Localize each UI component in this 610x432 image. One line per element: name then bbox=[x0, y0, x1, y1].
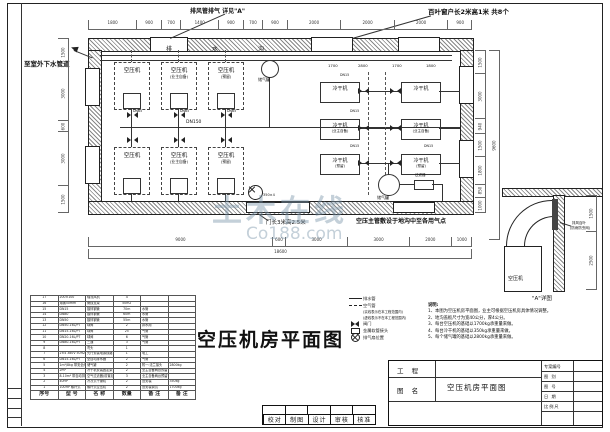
field-label: 专案编号 bbox=[544, 364, 561, 370]
dryer-unit: 冷干机(业主自备) bbox=[401, 119, 441, 140]
approval-label: 校对 bbox=[263, 415, 285, 424]
dim-chain-right: 15003000940150018008501000 bbox=[475, 50, 486, 213]
air-tank-label: 储气罐 bbox=[258, 78, 270, 82]
frame-corner-cells bbox=[7, 388, 21, 426]
drawing-title: 空压机房平面图 bbox=[197, 330, 344, 351]
compressor-unit: 空压机(业主自备) bbox=[161, 62, 197, 110]
louver-window bbox=[398, 37, 440, 52]
drawing-name-value: 空压机房平面图 bbox=[447, 384, 507, 392]
inner-dim: 1700 bbox=[328, 64, 338, 68]
dim-total-bottom: 18600 bbox=[88, 249, 472, 259]
exhaust-note: 排风管排气 详见"A" bbox=[190, 9, 245, 16]
pipe-size-label: DN150 bbox=[186, 121, 201, 126]
approval-labels-row: 校对制图设计审核核准 bbox=[263, 415, 375, 424]
exhaust-fan-label: 350×4 bbox=[263, 194, 275, 198]
louver-note: 百叶窗户长2米高1米 共8个 bbox=[428, 9, 509, 16]
compressor-unit: 空压机(预留) bbox=[208, 62, 244, 110]
dim-chain-left: 1500300060030001500 bbox=[58, 38, 69, 213]
notes: 说明: 1、本图为空压机房平面图，业主可根据空压机房具体情况调整。2、地沟盖板尺… bbox=[428, 303, 600, 341]
door-opening bbox=[246, 202, 310, 213]
frame-binding-line bbox=[21, 3, 22, 426]
approval-strip: 校对制图设计审核核准 bbox=[262, 405, 376, 425]
inner-dim: 1700 bbox=[392, 64, 402, 68]
legend: 排水管 空气管 (实线表示在本工程范围内) (虚线表示不在本工程范围内) 阀门 … bbox=[347, 295, 431, 341]
bom-header-row: 序号型 号名 称 数量备 注备 注 bbox=[31, 391, 196, 400]
dim-total-right: 9600 bbox=[489, 50, 500, 240]
detail-louver bbox=[552, 199, 558, 230]
filter-label: 过滤器 bbox=[415, 174, 426, 178]
pipe-size-label: DN15 bbox=[350, 110, 359, 114]
dryer-unit: 冷干机(业主自备) bbox=[320, 119, 360, 140]
trench-char: 水 bbox=[212, 47, 218, 54]
compressor-unit: 空压机 bbox=[114, 62, 150, 110]
compressor-unit: 空压机 bbox=[114, 147, 150, 195]
dryer-unit: 冷干机 bbox=[320, 82, 360, 103]
approval-label: 制图 bbox=[285, 415, 307, 424]
drawing-sheet: 排 水 沟 bbox=[0, 0, 610, 432]
louver-window bbox=[459, 140, 474, 178]
exhaust-fan-icon bbox=[248, 185, 263, 200]
inner-dim: 1800 bbox=[426, 64, 436, 68]
pipe-size-label: DN15 bbox=[340, 74, 349, 78]
door-note: 门长3米高2.5米 bbox=[266, 220, 306, 226]
approval-label: 审核 bbox=[330, 415, 352, 424]
pipe-size-label: DN15 bbox=[424, 145, 433, 149]
title-block: 工 程 图 名 空压机房平面图 专案编号 图 别 图 号 日 期 比例尺 bbox=[388, 360, 603, 426]
pipe-size-label: DN65 bbox=[180, 110, 189, 114]
bom-table: 17200×100轴流风机 4 16角钢50mm管线支架 50m2 15DN15… bbox=[30, 295, 196, 400]
louver-window bbox=[85, 68, 100, 106]
field-label: 比例尺 bbox=[544, 404, 560, 410]
dim-chain-bottom: 90006003000300020001000 bbox=[88, 237, 472, 247]
approval-label: 设计 bbox=[308, 415, 330, 424]
dim-chain-detail: 15002500 bbox=[586, 195, 597, 290]
compressor-unit: 空压机(业主自备) bbox=[161, 147, 197, 195]
pipe-size-label: DN15 bbox=[350, 145, 359, 149]
air-tank bbox=[261, 60, 279, 78]
dryer-unit: 冷干机 bbox=[401, 82, 441, 103]
trench-char: 沟 bbox=[258, 47, 264, 54]
legend-valve-icon bbox=[347, 321, 363, 327]
pipe-size-label: DN65 bbox=[133, 110, 142, 114]
dryer-unit: 冷干机(预留) bbox=[320, 154, 360, 175]
inner-dim: 2800 bbox=[358, 64, 368, 68]
louver-window bbox=[85, 146, 100, 184]
legend-solid-line-icon bbox=[347, 298, 363, 299]
detail-caption: "A"详图 bbox=[532, 296, 552, 302]
filter-box bbox=[414, 180, 434, 190]
field-label: 图 号 bbox=[544, 384, 557, 390]
detail-compressor: 空压机 bbox=[504, 246, 542, 292]
compressor-unit: 空压机(预留) bbox=[208, 147, 244, 195]
field-label: 日 期 bbox=[544, 394, 557, 400]
approval-empty-row bbox=[263, 406, 375, 415]
dim-chain-top: 18009007001400900700900200020002000900 bbox=[88, 20, 472, 30]
drawing-name-label: 图 名 bbox=[397, 385, 421, 395]
air-tank bbox=[378, 174, 400, 196]
air-tank-label: 储气罐 bbox=[377, 196, 389, 200]
pipe-size-label: DN65 bbox=[227, 110, 236, 114]
main-pipe-note: 空压主管敷设于地沟中至各用气点 bbox=[356, 219, 446, 226]
project-label: 工 程 bbox=[397, 365, 421, 375]
notes-list: 1、本图为空压机房平面图，业主可根据空压机房具体情况调整。2、地沟盖板尺寸为宽4… bbox=[428, 309, 600, 341]
legend-dashed-line-icon bbox=[347, 305, 363, 306]
bom-rows: 17200×100轴流风机 4 16角钢50mm管线支架 50m2 15DN15… bbox=[31, 296, 196, 391]
field-label: 图 别 bbox=[544, 374, 557, 380]
approval-label: 核准 bbox=[353, 415, 375, 424]
dryer-unit: 冷干机(预留) bbox=[401, 154, 441, 175]
door-opening bbox=[393, 202, 435, 213]
louver-window bbox=[459, 66, 474, 104]
trench-char: 排 bbox=[166, 47, 172, 54]
louver-window bbox=[311, 37, 353, 52]
legend-fan-icon bbox=[347, 333, 363, 342]
